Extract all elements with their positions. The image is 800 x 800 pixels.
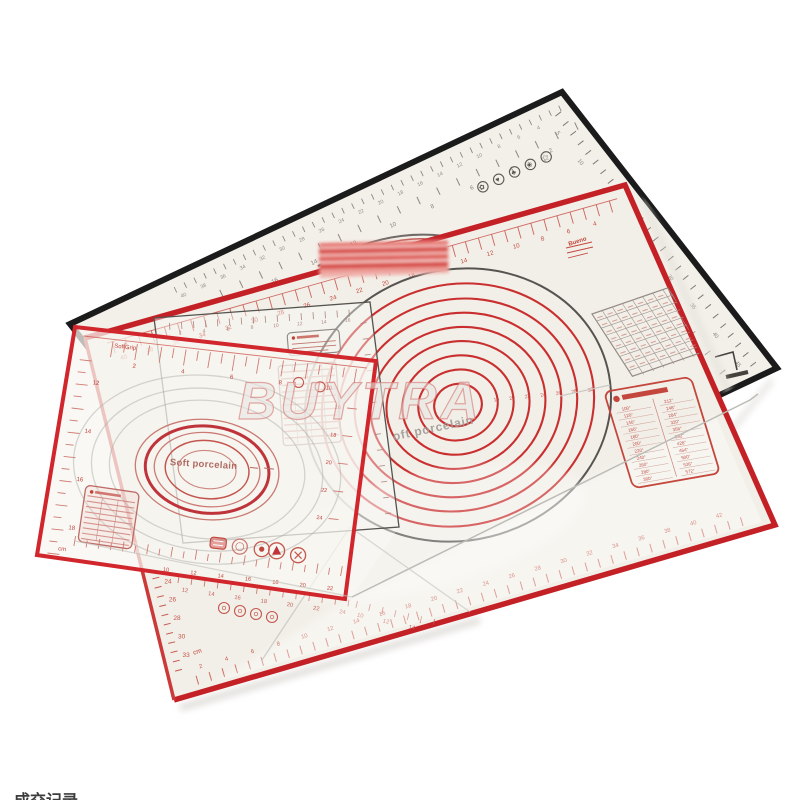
svg-text:14: 14 [217,573,224,580]
svg-text:cm: cm [58,546,67,553]
svg-text:20: 20 [325,460,332,467]
svg-text:12: 12 [181,588,188,595]
svg-text:成交记录: 成交记录 [14,791,78,800]
svg-text:14: 14 [321,319,327,325]
svg-text:20: 20 [286,602,293,609]
svg-text:12: 12 [297,321,303,327]
svg-text:22: 22 [321,487,328,494]
svg-text:16: 16 [345,317,351,323]
svg-text:22: 22 [313,606,320,613]
svg-text:10: 10 [163,567,170,574]
svg-text:18: 18 [330,432,337,439]
svg-text:10: 10 [273,323,279,329]
svg-text:33: 33 [182,652,190,659]
svg-text:12: 12 [190,570,197,577]
svg-text:18: 18 [260,598,267,605]
svg-text:26: 26 [169,597,177,604]
svg-text:BUYTRA: BUYTRA [238,372,483,431]
svg-text:24: 24 [164,578,172,585]
svg-text:24: 24 [316,515,323,522]
svg-text:22: 22 [326,586,333,593]
svg-text:16: 16 [234,595,241,602]
svg-text:30: 30 [178,634,186,641]
svg-text:16: 16 [244,576,251,583]
svg-text:28: 28 [173,615,181,622]
